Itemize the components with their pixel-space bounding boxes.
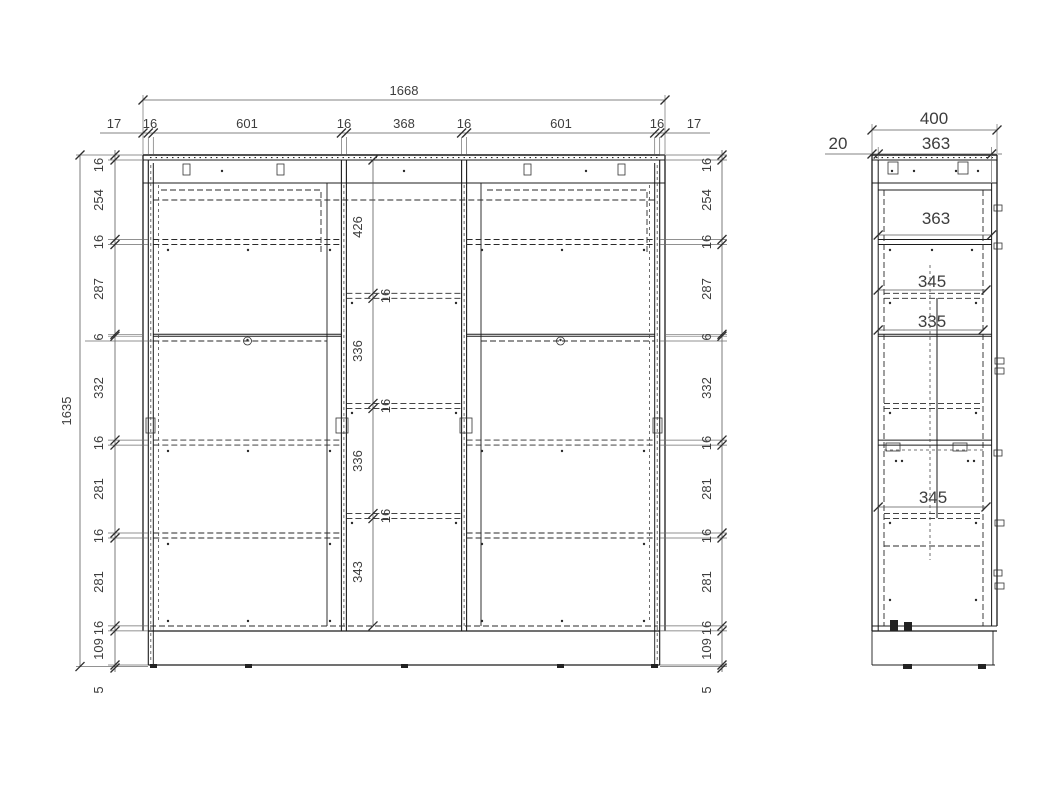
technical-drawing: 1668 17 16 601 16 368 16 601 16 17 1635 … <box>0 0 1063 797</box>
cad-sheet: 1668 17 16 601 16 368 16 601 16 17 1635 … <box>0 0 1063 797</box>
feet-marks <box>890 620 986 669</box>
dim-label: 345 <box>919 488 947 507</box>
dim-label: 5 <box>91 686 106 693</box>
dim-label: 336 <box>350 340 365 362</box>
dim-label: 16 <box>378 399 393 413</box>
dim-label: 345 <box>918 272 946 291</box>
dim-label: 16 <box>699 621 714 635</box>
dim-label: 281 <box>91 571 106 593</box>
dim-label: 363 <box>922 209 950 228</box>
dim-label: 16 <box>378 289 393 303</box>
dim-label: 16 <box>91 158 106 172</box>
dim-label: 601 <box>236 116 258 131</box>
dim-overall-depth: 400 <box>920 109 948 128</box>
dim-label: 17 <box>107 116 121 131</box>
dim-label: 336 <box>350 450 365 472</box>
dim-label: 17 <box>687 116 701 131</box>
dim-label: 109 <box>91 638 106 660</box>
dim-label: 6 <box>91 333 106 340</box>
side-dimensions: 400 20 363 363 345 335 345 <box>825 109 1002 512</box>
dim-carcass-depth: 363 <box>922 134 950 153</box>
dim-label: 16 <box>699 158 714 172</box>
dim-label: 287 <box>91 278 106 300</box>
dim-label: 16 <box>91 436 106 450</box>
dim-label: 254 <box>91 189 106 211</box>
dim-label: 16 <box>143 116 157 131</box>
dim-label: 601 <box>550 116 572 131</box>
dim-label: 16 <box>650 116 664 131</box>
dim-label: 6 <box>699 333 714 340</box>
dim-label: 109 <box>699 638 714 660</box>
dim-label: 254 <box>699 189 714 211</box>
dowel-dots <box>167 170 645 622</box>
dim-overall-width: 1668 <box>390 83 419 98</box>
dim-label: 281 <box>699 478 714 500</box>
front-view <box>143 155 665 668</box>
dim-label: 281 <box>91 478 106 500</box>
dim-overall-height: 1635 <box>59 397 74 426</box>
dim-label: 426 <box>350 216 365 238</box>
dim-label: 332 <box>91 377 106 399</box>
dim-label: 16 <box>91 235 106 249</box>
dim-label: 16 <box>699 436 714 450</box>
dim-label: 287 <box>699 278 714 300</box>
dim-label: 5 <box>699 686 714 693</box>
dim-label: 16 <box>337 116 351 131</box>
dim-label: 16 <box>699 235 714 249</box>
dim-label: 16 <box>457 116 471 131</box>
dim-label: 332 <box>699 377 714 399</box>
side-view <box>872 155 1004 669</box>
dim-label: 368 <box>393 116 415 131</box>
dim-label: 16 <box>378 509 393 523</box>
dim-label: 16 <box>699 529 714 543</box>
dim-label: 335 <box>918 312 946 331</box>
front-dimensions: 1668 17 16 601 16 368 16 601 16 17 1635 … <box>59 83 727 694</box>
dowel-dots <box>889 170 979 601</box>
dim-label: 16 <box>91 529 106 543</box>
dim-label: 16 <box>91 621 106 635</box>
dim-label: 343 <box>350 561 365 583</box>
dim-ticks <box>76 96 727 673</box>
dim-label: 281 <box>699 571 714 593</box>
dim-back-gap: 20 <box>829 134 848 153</box>
